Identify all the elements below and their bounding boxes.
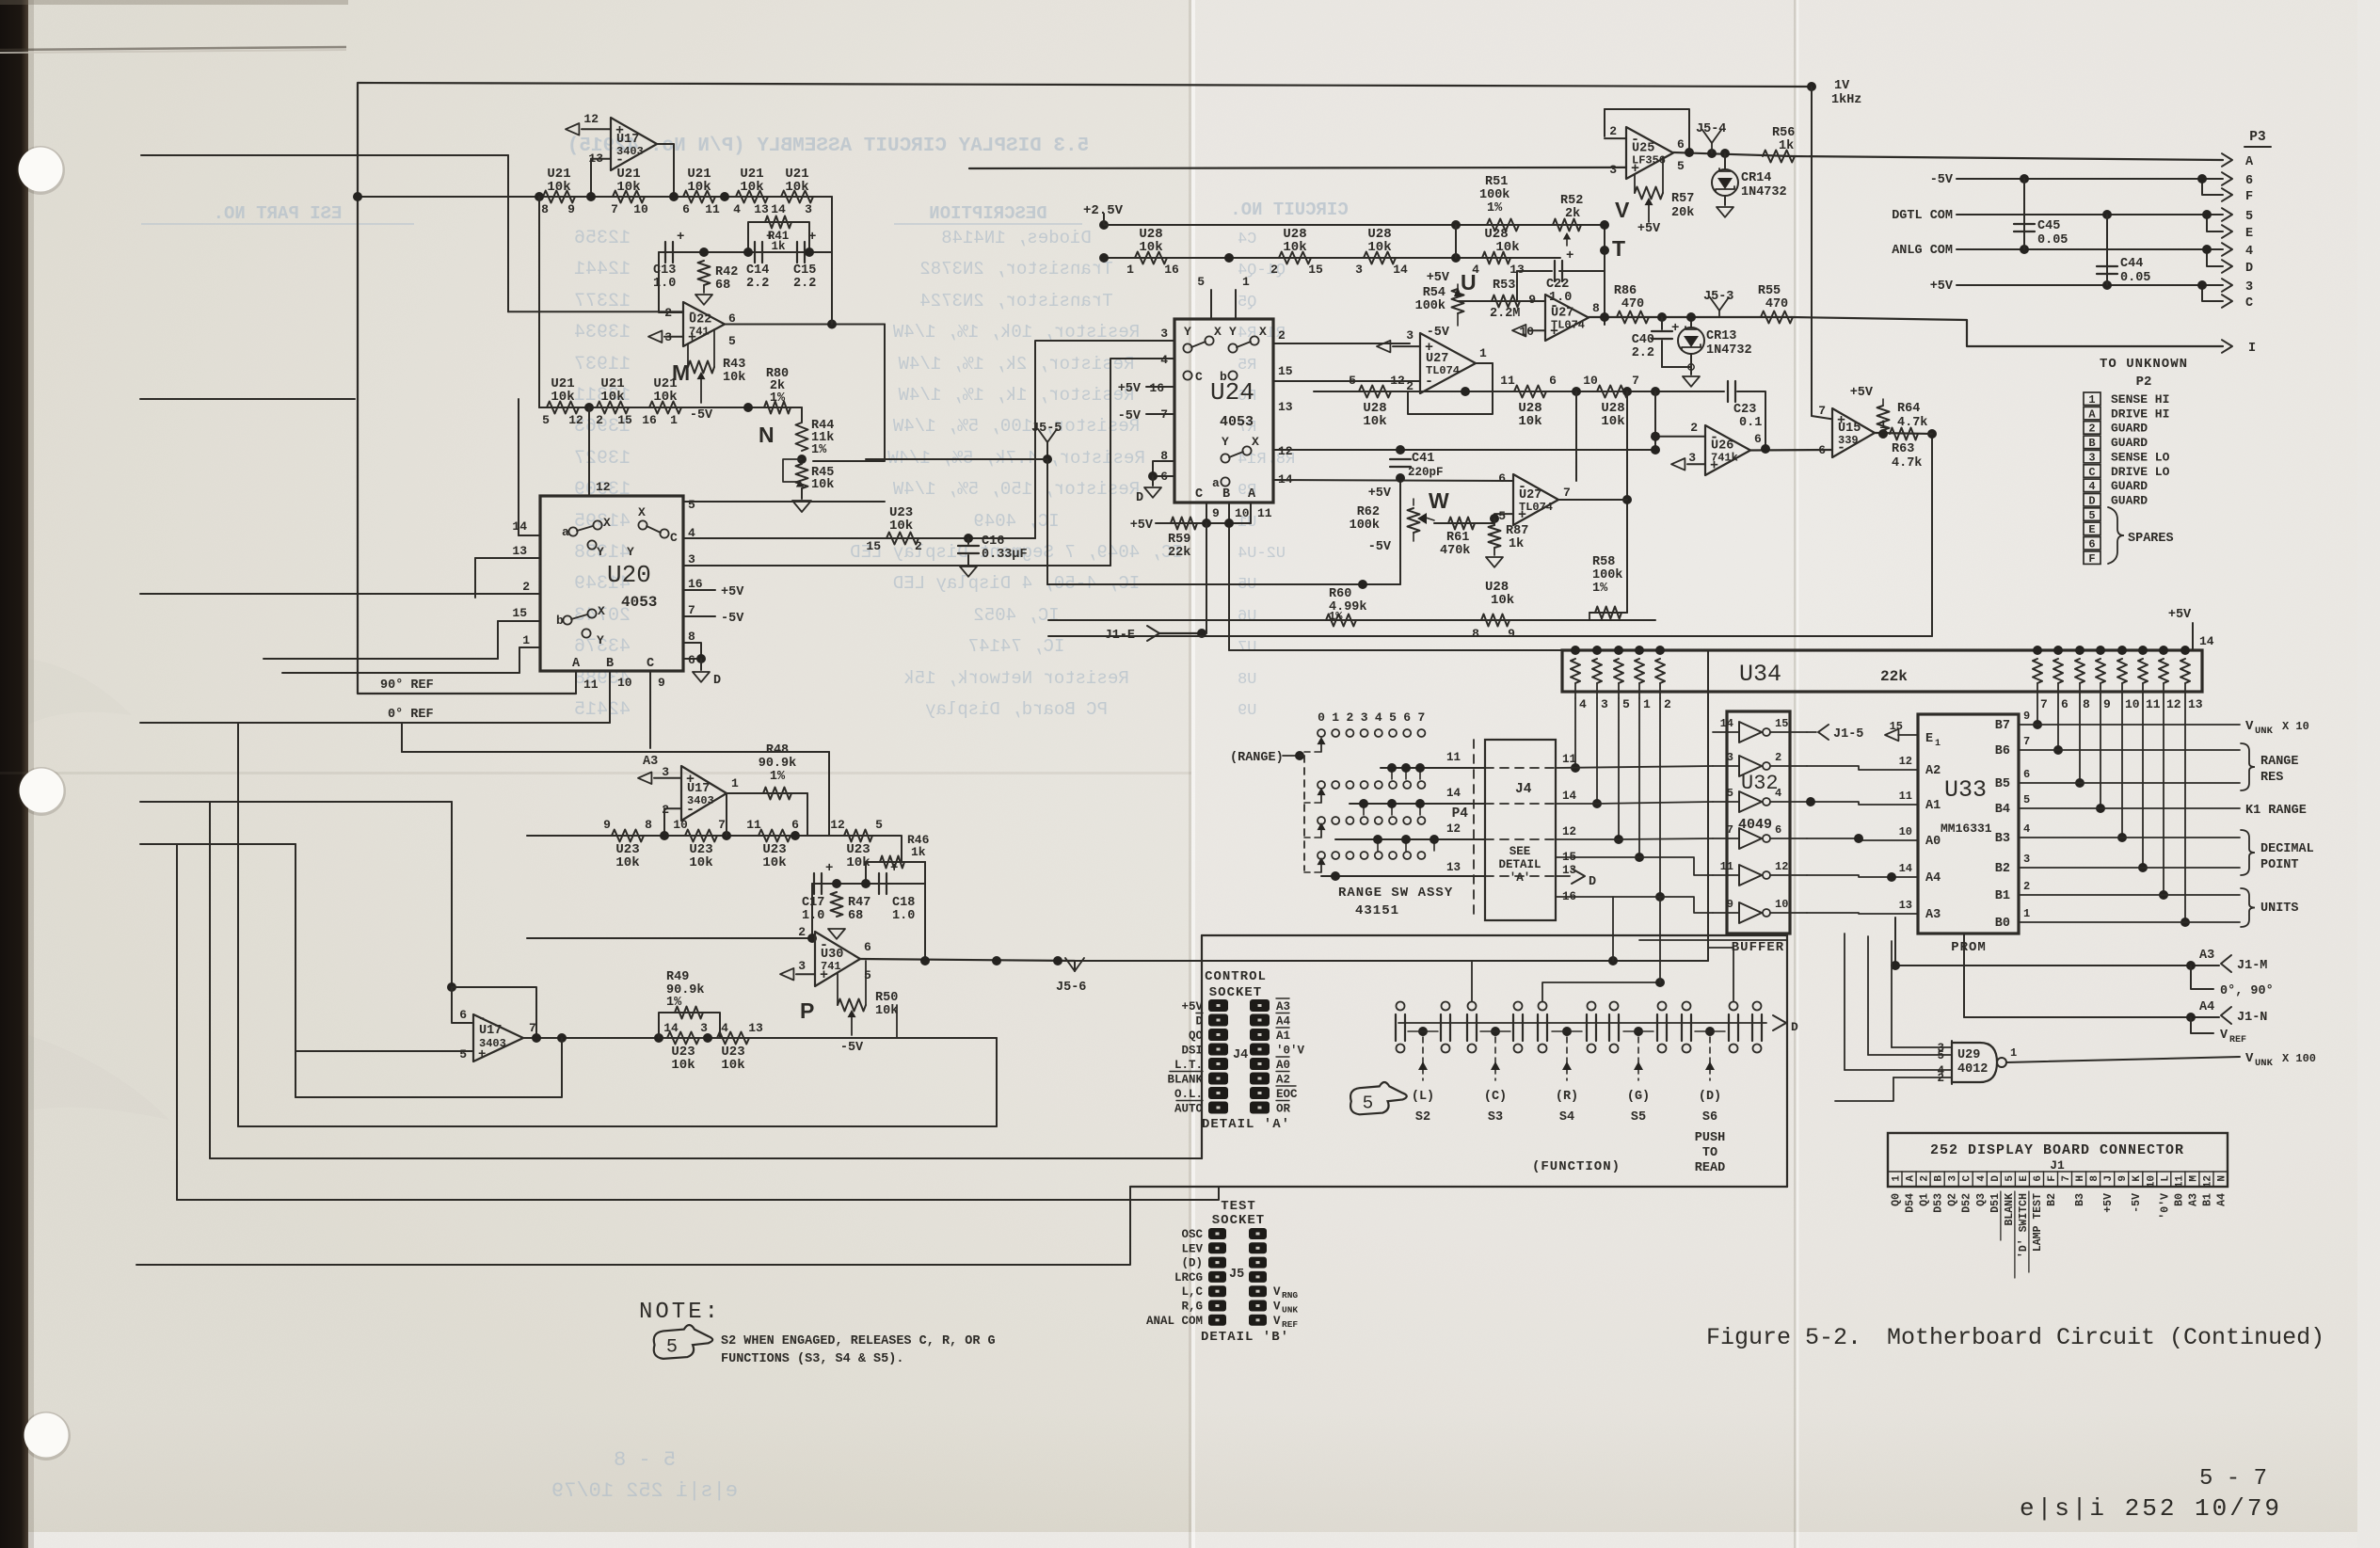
svg-text:1N4732: 1N4732 bbox=[1741, 185, 1787, 199]
svg-text:2: 2 bbox=[798, 925, 806, 939]
svg-text:15: 15 bbox=[512, 606, 527, 620]
svg-text:15: 15 bbox=[1278, 364, 1293, 378]
svg-text:3: 3 bbox=[1406, 328, 1414, 343]
svg-text:D54: D54 bbox=[1905, 1193, 1917, 1213]
svg-text:9: 9 bbox=[1528, 293, 1536, 307]
svg-text:L: L bbox=[2160, 1175, 2171, 1182]
svg-text:11: 11 bbox=[746, 818, 761, 832]
svg-text:1k: 1k bbox=[1509, 537, 1524, 551]
svg-text:1.0: 1.0 bbox=[892, 909, 915, 923]
svg-text:TL074: TL074 bbox=[1551, 319, 1585, 332]
svg-text:R55: R55 bbox=[1758, 284, 1781, 298]
svg-text:4012: 4012 bbox=[1957, 1062, 1988, 1077]
svg-text:X: X bbox=[638, 505, 646, 519]
svg-text:5: 5 bbox=[1622, 697, 1630, 711]
svg-text:470: 470 bbox=[1765, 297, 1788, 311]
svg-text:C14: C14 bbox=[746, 263, 769, 278]
svg-text:10: 10 bbox=[673, 818, 688, 832]
svg-text:P3: P3 bbox=[2249, 130, 2265, 145]
svg-text:S6: S6 bbox=[1702, 1110, 1717, 1125]
svg-text:W: W bbox=[1429, 488, 1449, 513]
svg-text:12: 12 bbox=[1390, 374, 1405, 388]
svg-text:'0'V: '0'V bbox=[1276, 1045, 1305, 1058]
svg-text:RES: RES bbox=[2260, 771, 2283, 785]
svg-text:8: 8 bbox=[1472, 627, 1479, 641]
svg-text:1k: 1k bbox=[911, 845, 926, 859]
svg-text:5: 5 bbox=[1727, 787, 1733, 800]
svg-text:(D): (D) bbox=[1699, 1090, 1721, 1104]
svg-text:3: 3 bbox=[1688, 451, 1696, 465]
svg-text:11937: 11937 bbox=[574, 354, 631, 375]
svg-text:U24: U24 bbox=[1210, 378, 1254, 407]
svg-text:DESCRIPTION: DESCRIPTION bbox=[929, 203, 1046, 224]
svg-text:GUARD: GUARD bbox=[2111, 436, 2148, 450]
svg-text:Resistor Network, 15k: Resistor Network, 15k bbox=[903, 668, 1128, 689]
svg-text:15: 15 bbox=[1890, 720, 1903, 733]
svg-text:6: 6 bbox=[1677, 137, 1685, 152]
svg-text:3: 3 bbox=[700, 1021, 708, 1035]
svg-text:B0: B0 bbox=[2173, 1193, 2185, 1206]
svg-text:11: 11 bbox=[2174, 1175, 2185, 1189]
svg-text:11: 11 bbox=[1720, 860, 1733, 873]
svg-text:10k: 10k bbox=[723, 371, 745, 385]
svg-text:6: 6 bbox=[1754, 432, 1762, 446]
svg-text:DRIVE HI: DRIVE HI bbox=[2111, 407, 2169, 421]
svg-text:9: 9 bbox=[2103, 697, 2111, 711]
svg-text:J1-5: J1-5 bbox=[1833, 727, 1863, 742]
svg-text:Resistor, 1k, 1%, 1/4W: Resistor, 1k, 1%, 1/4W bbox=[898, 385, 1134, 406]
svg-text:16: 16 bbox=[1164, 263, 1179, 277]
svg-text:+5V: +5V bbox=[1118, 382, 1142, 396]
svg-text:13: 13 bbox=[512, 544, 527, 558]
svg-text:-5V: -5V bbox=[1930, 173, 1954, 187]
svg-text:0° REF: 0° REF bbox=[388, 708, 434, 722]
svg-text:1: 1 bbox=[670, 413, 678, 427]
svg-text:8: 8 bbox=[1592, 301, 1600, 315]
svg-text:10k: 10k bbox=[653, 390, 677, 405]
svg-text:6: 6 bbox=[864, 940, 871, 954]
svg-text:PROM: PROM bbox=[1951, 940, 1987, 955]
svg-text:12356: 12356 bbox=[574, 228, 631, 249]
svg-text:+: + bbox=[808, 230, 816, 245]
svg-text:X: X bbox=[603, 516, 611, 530]
svg-text:UNK: UNK bbox=[2255, 726, 2274, 737]
svg-text:ANLG COM: ANLG COM bbox=[1892, 244, 1953, 258]
svg-text:J4: J4 bbox=[1515, 782, 1532, 797]
svg-text:+5V: +5V bbox=[2168, 608, 2192, 622]
svg-text:10k: 10k bbox=[740, 180, 763, 195]
svg-text:Resistor, 100, 5%, 1/4W: Resistor, 100, 5%, 1/4W bbox=[892, 416, 1140, 437]
svg-text:IC, 74147: IC, 74147 bbox=[968, 636, 1065, 657]
svg-text:5: 5 bbox=[2005, 1175, 2016, 1182]
svg-text:5: 5 bbox=[875, 818, 883, 832]
svg-text:4: 4 bbox=[1375, 710, 1382, 725]
svg-text:Q3: Q3 bbox=[1975, 1193, 1988, 1206]
svg-text:12377: 12377 bbox=[574, 291, 631, 312]
svg-text:Y: Y bbox=[597, 545, 604, 559]
svg-text:C: C bbox=[2088, 466, 2095, 479]
svg-text:6: 6 bbox=[2023, 768, 2030, 781]
svg-text:SEE: SEE bbox=[1509, 845, 1531, 858]
svg-text:12: 12 bbox=[583, 112, 599, 126]
svg-text:R64: R64 bbox=[1897, 402, 1920, 416]
svg-text:13: 13 bbox=[1899, 899, 1912, 912]
svg-text:READ: READ bbox=[1695, 1161, 1725, 1175]
svg-text:100k: 100k bbox=[1350, 519, 1380, 533]
svg-text:1: 1 bbox=[1892, 1175, 1903, 1182]
svg-text:339: 339 bbox=[1838, 434, 1859, 447]
svg-text:A4: A4 bbox=[2199, 1000, 2214, 1014]
svg-text:0.05: 0.05 bbox=[2120, 271, 2150, 285]
svg-text:B1: B1 bbox=[2201, 1193, 2213, 1206]
svg-text:CIRCUIT NO.: CIRCUIT NO. bbox=[1230, 199, 1348, 220]
svg-text:1: 1 bbox=[1332, 710, 1339, 725]
svg-text:6: 6 bbox=[2061, 697, 2069, 711]
svg-text:A1: A1 bbox=[1276, 1029, 1290, 1043]
svg-text:B3: B3 bbox=[2074, 1193, 2086, 1206]
svg-text:2k: 2k bbox=[1565, 207, 1580, 221]
svg-text:A3: A3 bbox=[2187, 1193, 2199, 1206]
svg-text:6: 6 bbox=[1775, 823, 1781, 837]
svg-text:Q2: Q2 bbox=[1947, 1193, 1959, 1206]
svg-text:1: 1 bbox=[1479, 346, 1487, 360]
svg-text:TEST: TEST bbox=[1221, 1199, 1256, 1214]
svg-text:1%: 1% bbox=[1592, 582, 1608, 596]
svg-text:7: 7 bbox=[2023, 735, 2030, 748]
svg-text:1%: 1% bbox=[666, 996, 682, 1010]
svg-text:A3: A3 bbox=[2199, 949, 2214, 963]
svg-text:a: a bbox=[562, 525, 569, 539]
svg-text:UNK: UNK bbox=[1282, 1305, 1298, 1316]
svg-text:(L): (L) bbox=[1412, 1090, 1434, 1104]
svg-text:R49: R49 bbox=[666, 970, 689, 984]
svg-text:D: D bbox=[2245, 262, 2253, 276]
svg-text:E: E bbox=[1925, 732, 1933, 746]
svg-text:(FUNCTION): (FUNCTION) bbox=[1532, 1159, 1621, 1174]
svg-text:C16: C16 bbox=[982, 535, 1004, 549]
svg-text:P: P bbox=[800, 998, 814, 1023]
svg-text:CR14: CR14 bbox=[1741, 171, 1771, 185]
svg-text:4053: 4053 bbox=[1220, 414, 1254, 430]
svg-text:TO UNKNOWN: TO UNKNOWN bbox=[2100, 357, 2188, 372]
svg-text:X 10: X 10 bbox=[2282, 720, 2309, 733]
svg-text:6: 6 bbox=[1818, 443, 1826, 457]
svg-text:5 - 7: 5 - 7 bbox=[2199, 1466, 2267, 1492]
svg-text:741k: 741k bbox=[1711, 452, 1738, 465]
svg-text:R53: R53 bbox=[1493, 279, 1515, 293]
svg-text:9: 9 bbox=[658, 676, 665, 690]
svg-text:D53: D53 bbox=[1933, 1193, 1945, 1213]
svg-text:N: N bbox=[2217, 1175, 2228, 1182]
svg-text:10k: 10k bbox=[616, 180, 640, 195]
svg-text:12: 12 bbox=[1775, 860, 1788, 873]
svg-text:16: 16 bbox=[1149, 381, 1164, 395]
svg-text:C: C bbox=[647, 657, 654, 671]
svg-text:5: 5 bbox=[1677, 159, 1685, 173]
svg-text:E: E bbox=[2088, 523, 2095, 536]
svg-text:7: 7 bbox=[1727, 823, 1733, 837]
svg-text:D: D bbox=[1990, 1175, 2002, 1182]
svg-text:4.7k: 4.7k bbox=[1892, 456, 1922, 471]
svg-text:BUFFER: BUFFER bbox=[1732, 940, 1784, 955]
svg-text:2.2M: 2.2M bbox=[1490, 307, 1520, 321]
svg-text:A2: A2 bbox=[1276, 1074, 1290, 1087]
svg-text:D: D bbox=[1136, 491, 1143, 505]
svg-text:V: V bbox=[2245, 719, 2254, 734]
svg-text:J1-N: J1-N bbox=[2237, 1011, 2267, 1025]
svg-text:1: 1 bbox=[2010, 1046, 2017, 1060]
svg-text:-5V: -5V bbox=[721, 612, 744, 626]
svg-text:10k: 10k bbox=[551, 390, 574, 405]
svg-text:C23: C23 bbox=[1733, 403, 1756, 417]
svg-text:3: 3 bbox=[1601, 697, 1608, 711]
svg-text:R42: R42 bbox=[715, 265, 738, 279]
svg-text:7: 7 bbox=[1563, 486, 1571, 500]
svg-text:Resistor, 10k, 1%, 1/4W: Resistor, 10k, 1%, 1/4W bbox=[892, 322, 1140, 343]
svg-text:11: 11 bbox=[2146, 697, 2161, 711]
svg-text:C: C bbox=[670, 531, 678, 545]
svg-text:1: 1 bbox=[731, 776, 739, 790]
svg-text:A: A bbox=[2088, 407, 2096, 421]
svg-text:R5: R5 bbox=[1238, 357, 1256, 375]
svg-text:Transistor, 2N3724: Transistor, 2N3724 bbox=[919, 291, 1112, 311]
svg-text:J5-3: J5-3 bbox=[1703, 290, 1733, 304]
svg-text:9: 9 bbox=[2117, 1175, 2129, 1182]
svg-text:4: 4 bbox=[1976, 1175, 1988, 1182]
svg-text:5 - 8: 5 - 8 bbox=[614, 1448, 676, 1472]
svg-text:DGTL COM: DGTL COM bbox=[1892, 209, 1953, 223]
svg-text:16: 16 bbox=[688, 577, 703, 591]
svg-text:R51: R51 bbox=[1485, 175, 1508, 189]
svg-text:R59: R59 bbox=[1168, 533, 1190, 547]
svg-text:+: + bbox=[677, 230, 684, 245]
svg-text:D: D bbox=[1791, 1020, 1798, 1034]
svg-text:DSI: DSI bbox=[1181, 1045, 1203, 1058]
svg-text:10: 10 bbox=[617, 676, 632, 690]
svg-text:4053: 4053 bbox=[621, 594, 657, 611]
svg-text:J1-M: J1-M bbox=[2237, 959, 2267, 973]
svg-text:5: 5 bbox=[2245, 210, 2253, 224]
svg-text:2.2: 2.2 bbox=[1632, 346, 1654, 360]
svg-text:1%: 1% bbox=[770, 770, 786, 784]
svg-text:R61: R61 bbox=[1446, 531, 1469, 545]
svg-text:TL074: TL074 bbox=[1426, 364, 1460, 377]
svg-text:X: X bbox=[1214, 325, 1222, 339]
svg-text:J5-5: J5-5 bbox=[1031, 422, 1062, 436]
svg-text:A4: A4 bbox=[2216, 1193, 2228, 1206]
svg-text:(RANGE): (RANGE) bbox=[1230, 751, 1284, 765]
svg-text:D52: D52 bbox=[1961, 1193, 1973, 1213]
svg-text:12: 12 bbox=[830, 818, 845, 832]
svg-text:UNK: UNK bbox=[2255, 1058, 2274, 1069]
svg-text:14: 14 bbox=[663, 1021, 679, 1035]
svg-text:10: 10 bbox=[1899, 825, 1912, 838]
svg-text:B: B bbox=[1222, 487, 1230, 502]
svg-text:B2: B2 bbox=[2046, 1193, 2058, 1206]
svg-text:Y: Y bbox=[1184, 325, 1191, 339]
svg-text:V: V bbox=[1273, 1315, 1281, 1328]
svg-text:3: 3 bbox=[688, 552, 695, 567]
svg-text:100k: 100k bbox=[1592, 568, 1622, 582]
svg-text:2: 2 bbox=[2023, 880, 2030, 893]
svg-text:10k: 10k bbox=[1367, 240, 1391, 255]
svg-text:12: 12 bbox=[1899, 755, 1912, 768]
svg-text:5: 5 bbox=[1349, 374, 1356, 388]
svg-text:2: 2 bbox=[1920, 1175, 1931, 1182]
svg-text:1V: 1V bbox=[1834, 79, 1850, 93]
svg-text:R86: R86 bbox=[1614, 284, 1637, 298]
svg-text:3: 3 bbox=[1727, 751, 1733, 764]
svg-text:F: F bbox=[2047, 1175, 2058, 1182]
svg-text:C15: C15 bbox=[793, 263, 816, 278]
svg-text:MM16331: MM16331 bbox=[1941, 822, 1992, 836]
svg-text:R47: R47 bbox=[848, 896, 871, 910]
svg-text:D51: D51 bbox=[1989, 1193, 2002, 1213]
svg-text:+: + bbox=[766, 230, 774, 245]
svg-text:-5V: -5V bbox=[840, 1041, 864, 1055]
svg-text:10: 10 bbox=[1775, 898, 1788, 911]
svg-text:TO: TO bbox=[1702, 1146, 1717, 1160]
svg-text:+5V: +5V bbox=[1637, 222, 1661, 236]
svg-text:6: 6 bbox=[1160, 470, 1168, 484]
svg-text:R,G: R,G bbox=[1181, 1301, 1203, 1314]
svg-text:4049: 4049 bbox=[1738, 817, 1772, 833]
svg-text:1N4732: 1N4732 bbox=[1706, 343, 1752, 358]
svg-text:PUSH: PUSH bbox=[1695, 1131, 1725, 1145]
svg-text:'A': 'A' bbox=[1509, 871, 1531, 885]
svg-text:1%: 1% bbox=[1329, 610, 1343, 623]
svg-text:8: 8 bbox=[2083, 697, 2090, 711]
svg-text:V: V bbox=[2220, 1029, 2228, 1043]
svg-text:5: 5 bbox=[688, 498, 695, 512]
svg-text:0.1: 0.1 bbox=[1739, 416, 1762, 430]
svg-text:14: 14 bbox=[771, 202, 786, 216]
svg-text:6: 6 bbox=[2245, 174, 2253, 188]
svg-text:J4: J4 bbox=[1233, 1048, 1248, 1062]
svg-text:3403: 3403 bbox=[616, 145, 644, 158]
svg-text:S5: S5 bbox=[1631, 1110, 1646, 1125]
svg-text:U9: U9 bbox=[1238, 702, 1256, 720]
svg-text:REF: REF bbox=[2229, 1035, 2246, 1045]
svg-text:J5-6: J5-6 bbox=[1056, 981, 1086, 995]
svg-text:A: A bbox=[572, 657, 581, 671]
svg-text:U34: U34 bbox=[1739, 661, 1781, 688]
svg-text:D: D bbox=[1195, 1015, 1203, 1029]
svg-text:9: 9 bbox=[1727, 898, 1733, 911]
svg-text:-5V: -5V bbox=[690, 408, 713, 423]
svg-text:D: D bbox=[713, 674, 721, 688]
svg-text:AUTO: AUTO bbox=[1174, 1103, 1204, 1116]
svg-text:A2: A2 bbox=[1925, 764, 1941, 778]
svg-text:10k: 10k bbox=[1283, 240, 1306, 255]
svg-text:M: M bbox=[2188, 1175, 2199, 1182]
svg-text:LF356: LF356 bbox=[1632, 154, 1666, 168]
svg-text:43151: 43151 bbox=[1355, 903, 1399, 918]
svg-text:P4: P4 bbox=[1452, 806, 1469, 822]
svg-text:SOCKET: SOCKET bbox=[1209, 985, 1262, 1000]
svg-text:Q1: Q1 bbox=[1919, 1193, 1931, 1206]
svg-text:J5: J5 bbox=[1229, 1268, 1244, 1282]
svg-text:9: 9 bbox=[1508, 627, 1515, 641]
svg-text:10k: 10k bbox=[762, 855, 786, 870]
svg-text:R54: R54 bbox=[1423, 286, 1446, 300]
svg-text:V: V bbox=[1273, 1301, 1281, 1314]
svg-text:10k: 10k bbox=[811, 478, 834, 492]
svg-text:BLANK: BLANK bbox=[1167, 1074, 1203, 1087]
svg-text:3: 3 bbox=[1609, 163, 1617, 177]
svg-text:+5V: +5V bbox=[1130, 519, 1154, 533]
svg-text:T: T bbox=[1612, 236, 1625, 261]
svg-text:11: 11 bbox=[1899, 790, 1912, 803]
svg-text:V: V bbox=[1615, 198, 1630, 222]
svg-text:11: 11 bbox=[705, 202, 720, 216]
svg-text:0: 0 bbox=[1318, 710, 1325, 725]
svg-text:1: 1 bbox=[522, 633, 530, 647]
svg-text:10k: 10k bbox=[1491, 593, 1514, 608]
svg-text:+5V: +5V bbox=[1181, 1000, 1203, 1013]
svg-text:Y: Y bbox=[1222, 435, 1229, 449]
svg-text:0°, 90°: 0°, 90° bbox=[2220, 984, 2274, 998]
svg-text:2: 2 bbox=[1346, 710, 1353, 725]
svg-text:ANAL COM: ANAL COM bbox=[1146, 1315, 1203, 1328]
svg-text:U6: U6 bbox=[1238, 608, 1256, 626]
svg-text:7: 7 bbox=[1818, 404, 1826, 418]
svg-text:X: X bbox=[1259, 325, 1267, 339]
svg-text:3: 3 bbox=[2088, 451, 2095, 464]
svg-text:C: C bbox=[1962, 1175, 1973, 1182]
svg-text:10k: 10k bbox=[875, 1004, 898, 1018]
svg-text:R50: R50 bbox=[875, 991, 898, 1005]
svg-text:C22: C22 bbox=[1546, 278, 1569, 292]
svg-text:b: b bbox=[1220, 370, 1227, 384]
svg-text:7: 7 bbox=[2061, 1175, 2072, 1182]
svg-text:13: 13 bbox=[748, 1021, 763, 1035]
svg-text:2: 2 bbox=[1278, 328, 1286, 343]
svg-text:R48: R48 bbox=[766, 743, 789, 758]
svg-text:A4: A4 bbox=[1925, 871, 1941, 886]
svg-text:+: + bbox=[890, 861, 898, 876]
svg-text:+: + bbox=[1566, 248, 1573, 263]
svg-text:NOTE:: NOTE: bbox=[639, 1300, 721, 1325]
svg-text:1%: 1% bbox=[1487, 201, 1503, 215]
svg-text:12: 12 bbox=[2202, 1175, 2213, 1188]
svg-text:14: 14 bbox=[1899, 862, 1912, 875]
svg-text:SPARES: SPARES bbox=[2128, 532, 2174, 546]
svg-text:2: 2 bbox=[522, 580, 530, 594]
svg-text:BLANK: BLANK bbox=[2004, 1193, 2016, 1226]
svg-text:+5V: +5V bbox=[1850, 386, 1874, 400]
svg-text:10k: 10k bbox=[615, 855, 639, 870]
svg-text:C4: C4 bbox=[1238, 231, 1256, 248]
svg-text:10k: 10k bbox=[600, 390, 624, 405]
svg-text:D: D bbox=[2088, 495, 2095, 508]
svg-text:R60: R60 bbox=[1329, 587, 1351, 601]
svg-text:9: 9 bbox=[2023, 710, 2030, 723]
svg-text:B5: B5 bbox=[1995, 777, 2010, 791]
svg-text:2: 2 bbox=[2088, 423, 2095, 436]
svg-text:B3: B3 bbox=[1995, 832, 2010, 846]
svg-text:10: 10 bbox=[2125, 697, 2140, 711]
svg-text:CR13: CR13 bbox=[1706, 329, 1736, 343]
svg-text:A4: A4 bbox=[1276, 1015, 1291, 1029]
svg-text:5: 5 bbox=[1389, 710, 1397, 725]
svg-text:14: 14 bbox=[1446, 787, 1462, 800]
svg-text:R57: R57 bbox=[1671, 192, 1694, 206]
svg-text:10: 10 bbox=[2146, 1175, 2157, 1188]
svg-text:13: 13 bbox=[1446, 861, 1461, 874]
svg-text:2: 2 bbox=[1270, 263, 1278, 277]
svg-text:14: 14 bbox=[1720, 717, 1733, 730]
